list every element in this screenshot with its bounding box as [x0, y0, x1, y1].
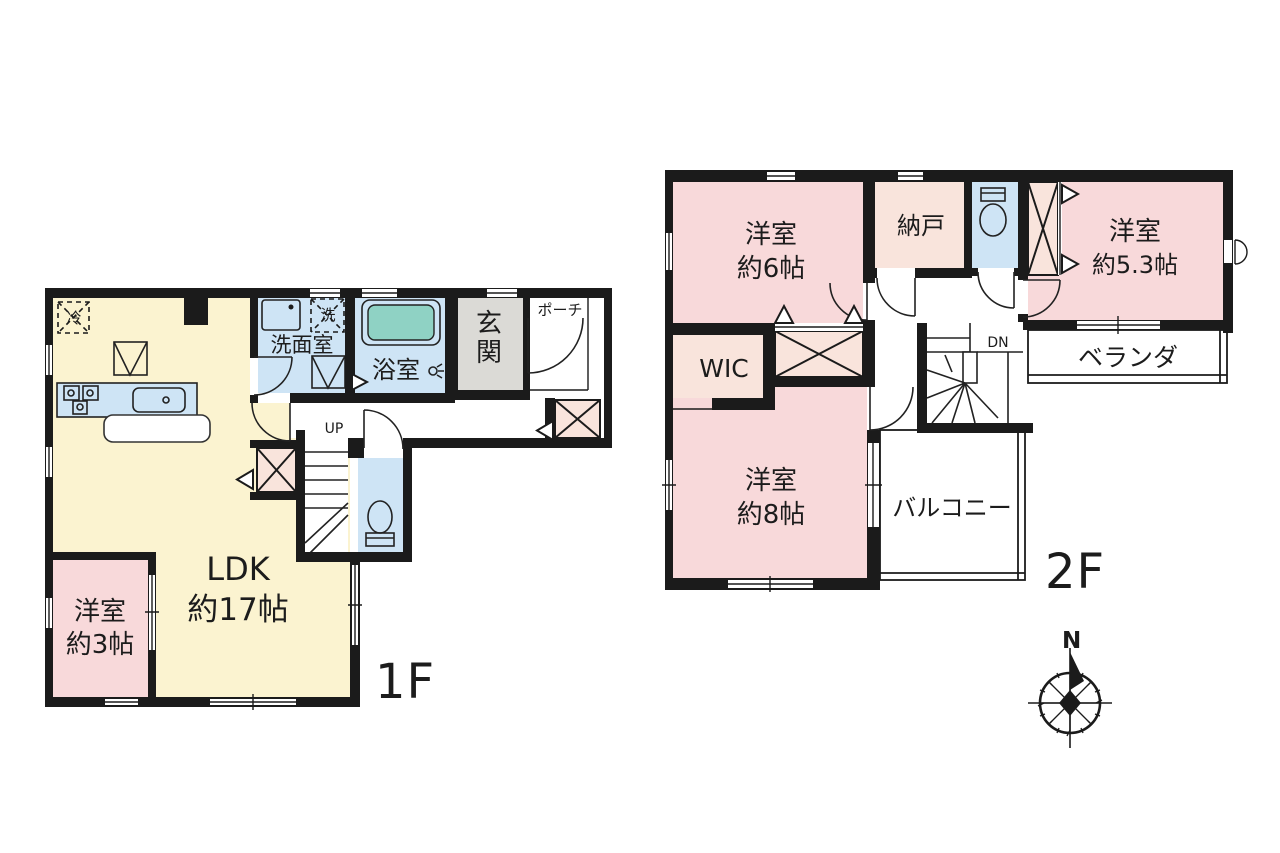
door-toilet-1f: [364, 410, 403, 449]
stairs-area-1f: [305, 430, 348, 552]
door-toilet-2f: [978, 272, 1014, 308]
floor-2f: 洋室 約6帖 納戸 洋室 約5.3帖 WIC 洋室 約8帖 バルコニー ベランダ…: [662, 170, 1247, 600]
floor-plan-page: 冷 洗: [0, 0, 1280, 853]
label-washroom: 洗面室: [271, 333, 334, 357]
label-entrance: 玄関: [476, 309, 502, 368]
label-ldk: LDK: [206, 550, 270, 588]
label-bedroom6-size: 約6帖: [737, 254, 806, 284]
room-toilet-2f: [972, 182, 1018, 268]
label-ldk-size: 約17帖: [187, 592, 288, 628]
label-bedroom53-size: 約5.3帖: [1092, 251, 1178, 279]
outswing-door-icon: [1235, 240, 1247, 264]
floor-1f: 冷 洗: [45, 288, 612, 710]
door-front-entry: [528, 318, 583, 373]
label-stairs-dn: DN: [987, 335, 1008, 351]
counter-front: [104, 415, 210, 442]
laundry-label: 洗: [320, 306, 335, 324]
door-bedroom8: [870, 387, 913, 430]
label-balcony: バルコニー: [892, 494, 1012, 522]
label-wic: WIC: [699, 354, 749, 383]
label-floor-2f: 2F: [1045, 544, 1105, 600]
compass-north-label: N: [1062, 628, 1081, 654]
fridge-label: 冷: [66, 309, 81, 327]
label-stairs-up: UP: [325, 421, 344, 437]
compass-icon: N: [1028, 628, 1112, 748]
floor-plan-drawing: 冷 洗: [0, 0, 1280, 853]
room-bedroom3: [53, 560, 148, 697]
label-nando: 納戸: [897, 212, 945, 240]
label-bedroom8: 洋室: [745, 466, 797, 496]
label-bedroom6: 洋室: [745, 220, 797, 250]
bathtub-icon: [362, 300, 440, 345]
label-bedroom53: 洋室: [1109, 217, 1161, 247]
north-needle: [1070, 652, 1084, 690]
label-bedroom3: 洋室: [74, 597, 126, 627]
label-veranda: ベランダ: [1078, 343, 1178, 372]
label-bedroom3-size: 約3帖: [66, 630, 135, 660]
label-bedroom8-size: 約8帖: [737, 500, 806, 530]
label-bathroom: 浴室: [372, 356, 420, 384]
label-porch: ポーチ: [537, 301, 582, 319]
label-floor-1f: 1F: [375, 654, 435, 710]
door-nando: [877, 278, 915, 316]
